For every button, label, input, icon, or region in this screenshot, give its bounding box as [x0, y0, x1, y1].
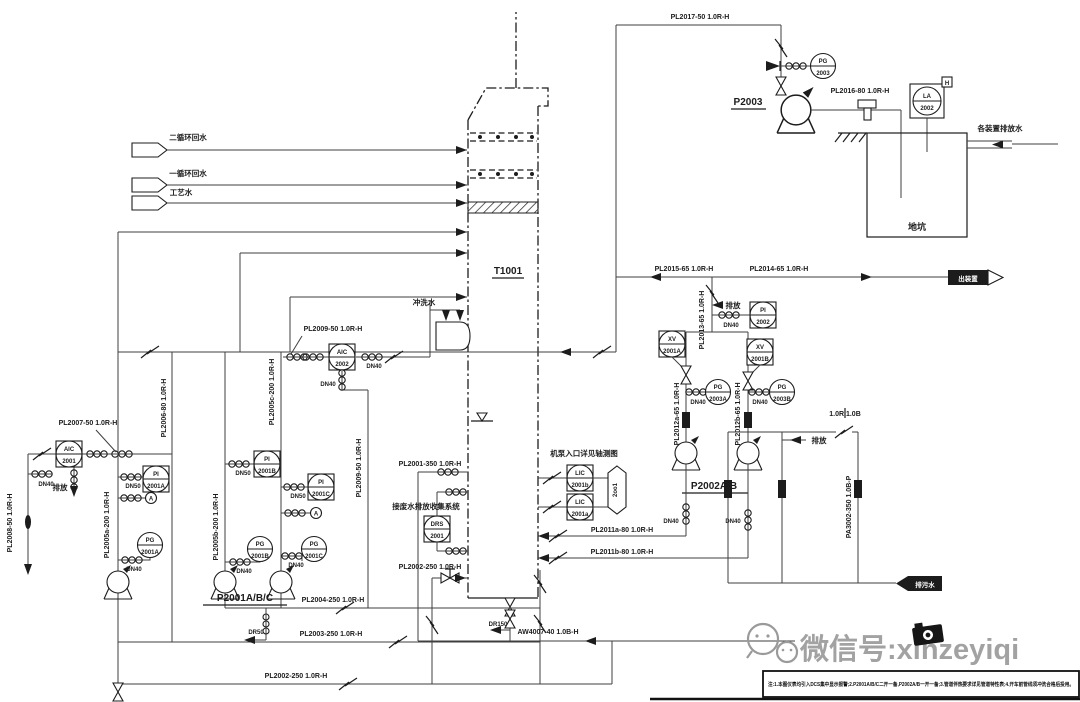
svg-text:2001a: 2001a [572, 512, 589, 518]
dn40-label: DN40 [690, 400, 706, 406]
instrument-lic2001a: LIC2001a [567, 494, 593, 520]
vent-label-2: 排放 [812, 435, 827, 445]
svg-text:2001B: 2001B [751, 357, 769, 363]
voting-logic-symbol: 2oo1 [608, 466, 626, 514]
svg-text:PG: PG [256, 542, 265, 548]
sample-point-a2: A [311, 508, 322, 519]
pipe-label-pl2005b: PL2005b-200 1.0R-H [213, 494, 220, 561]
pipe-label-pl2013: PL2013-65 1.0R-H [699, 291, 706, 350]
dn40-label: DN40 [320, 382, 336, 388]
dn40-label: DN40 [752, 400, 768, 406]
dn40-label: DN40 [723, 323, 739, 329]
svg-text:2001B: 2001B [251, 554, 269, 560]
instrument-pg2003: PG2003 [811, 54, 836, 79]
svg-text:XV: XV [756, 345, 764, 351]
svg-text:2001A: 2001A [141, 550, 159, 556]
instrument-pi2002: PI2002 [750, 302, 776, 328]
packing-band [468, 202, 538, 213]
dn50-label: DN50 [290, 494, 306, 500]
pipe-label-pl2011a: PL2011a-80 1.0R-H [591, 527, 653, 534]
instrument-pg2001a: PG2001A [138, 533, 163, 558]
svg-text:出装置: 出装置 [958, 274, 978, 283]
instrument-pg2003b: PG2003B [770, 380, 795, 405]
dn50-label: DN50 [235, 471, 251, 477]
pipe-label-pl2016: PL2016-80 1.0R-H [831, 88, 890, 95]
column-tag: T1001 [494, 266, 523, 277]
svg-text:AIC: AIC [337, 350, 348, 356]
pipe-label-pa3002: PA3002-350 1.0B-P [846, 475, 853, 538]
instrument-pi2001b: PI2001B [254, 451, 280, 477]
svg-text:2002: 2002 [335, 362, 349, 368]
svg-text:2oo1: 2oo1 [613, 482, 619, 497]
pid-drawing-canvas: T1001 冲洗水 DR150 二循环回水 一循环回水 工艺水 [0, 0, 1080, 702]
pipe-label-pl2015: PL2015-65 1.0R-H [655, 266, 714, 273]
general-notes-text: 注:1.本图仪表均引入DCS集中显示报警;2.P2001A/B/C二开一备,P2… [768, 680, 1074, 688]
pipe-label-pl2005c: PL2005c-200 1.0R-H [269, 359, 276, 426]
dn50-label: DN50 [125, 484, 141, 490]
dr50-label: DR50 [248, 630, 264, 636]
svg-text:LIC: LIC [575, 500, 585, 506]
svg-text:XV: XV [668, 337, 676, 343]
dn40-label: DN40 [236, 569, 252, 575]
svg-text:2002: 2002 [920, 106, 934, 112]
pipe-label-pl2007: PL2007-50 1.0R-H [59, 420, 118, 427]
svg-text:PG: PG [819, 59, 828, 65]
svg-text:2001C: 2001C [312, 492, 330, 498]
pipe-label-pl2004: PL2004-250 1.0R-H [302, 597, 365, 604]
pipe-label-pl2009v: PL2009-50 1.0R-H [356, 439, 363, 498]
pipe-label-pl2002a: PL2002-250 1.0R-H [399, 564, 462, 571]
pipe-label-pl2006: PL2006-80 1.0R-H [161, 379, 168, 438]
instrument-xv2001a: XV2001A [659, 331, 685, 357]
feed1-label: 二循环回水 [169, 132, 207, 142]
pit-label: 地坑 [908, 221, 926, 232]
pipe-label-pl2009h: PL2009-50 1.0R-H [304, 326, 363, 333]
instrument-xv2001b: XV2001B [747, 339, 773, 365]
pid-diagram: T1001 冲洗水 DR150 二循环回水 一循环回水 工艺水 [0, 0, 1080, 702]
svg-text:PI: PI [153, 472, 159, 478]
pipe-label-pl2001: PL2001-350 1.0R-H [399, 461, 462, 468]
p2003-tag: P2003 [734, 97, 763, 108]
drain-label: 排放 [53, 482, 68, 492]
pipe-label-pl2011b: PL2011b-80 1.0R-H [591, 549, 654, 556]
svg-text:2003B: 2003B [773, 397, 791, 403]
svg-text:PI: PI [264, 457, 270, 463]
svg-text:DRS: DRS [431, 522, 444, 528]
dn40-label: DN40 [366, 364, 382, 370]
pipe-label-pl2008: PL2008-50 1.0R-H [7, 494, 14, 553]
pipe-label-pl2014: PL2014-65 1.0R-H [750, 266, 809, 273]
svg-text:A: A [314, 512, 319, 518]
svg-text:2003: 2003 [816, 71, 830, 77]
aic2001-tag: AIC [64, 447, 75, 453]
svg-text:PI: PI [318, 480, 324, 486]
svg-text:PG: PG [310, 542, 319, 548]
svg-text:2001C: 2001C [305, 554, 323, 560]
drs-note: 接废水排放收集系统 [392, 501, 460, 511]
instrument-pg2001b: PG2001B [248, 537, 273, 562]
svg-text:LIC: LIC [575, 471, 585, 477]
svg-text:2001B: 2001B [258, 469, 276, 475]
pit-inlet-label: 各装置排放水 [977, 123, 1023, 133]
instrument-lic2001b: LIC2001b [567, 465, 593, 491]
sample-point-a1: A [146, 493, 157, 504]
svg-text:PI: PI [760, 308, 766, 314]
watermark-text: 微信号:xinzeyiqi [799, 633, 1019, 666]
p2001-tag: P2001A/B/C [217, 593, 273, 604]
dr150-label: DR150 [489, 622, 508, 628]
svg-text:排污水: 排污水 [915, 580, 935, 589]
instrument-drs2001: DRS2001 [424, 516, 450, 542]
svg-text:2001b: 2001b [571, 483, 588, 489]
wash-water-label: 冲洗水 [413, 297, 436, 307]
high-alarm-flag: H [945, 81, 949, 87]
instrument-pg2001c: PG2001C [302, 537, 327, 562]
pipe-label-pl2017: PL2017-50 1.0R-H [671, 14, 730, 21]
pipe-label-pl2003: PL2003-250 1.0R-H [300, 631, 363, 638]
aic2001-num: 2001 [62, 459, 76, 465]
instrument-aic2002: AIC2002 [329, 344, 355, 370]
pipe-label-pl2012b: PL2012b-65 1.0R-H [735, 382, 742, 445]
suction-strainer-a [682, 412, 690, 428]
pump-inlet-note: 机泵入口详见轴测图 [550, 448, 618, 458]
feed2-label: 一循环回水 [169, 168, 207, 178]
instrument-pi2001a: PI2001A [143, 466, 169, 492]
svg-text:2003A: 2003A [709, 397, 727, 403]
svg-text:PG: PG [778, 385, 787, 391]
pipe-label-pl2005a: PL2005a-200 1.0R-H [104, 492, 111, 559]
pipe-label-pl2002b: PL2002-250 1.0R-H [265, 673, 328, 680]
svg-text:2001: 2001 [430, 534, 444, 540]
svg-text:PG: PG [146, 538, 155, 544]
suction-strainer-b [744, 412, 752, 428]
svg-text:A: A [149, 497, 154, 503]
instrument-pg2003a: PG2003A [706, 380, 731, 405]
instrument-pi2001c: PI2001C [308, 474, 334, 500]
svg-text:2001A: 2001A [663, 349, 681, 355]
instrument-aic2001: AIC 2001 [56, 441, 82, 467]
pipe-label-pl2012a: PL2012a-65 1.0R-H [674, 383, 681, 446]
svg-text:PG: PG [714, 385, 723, 391]
svg-text:LA: LA [923, 94, 932, 100]
vent-label-1: 排放 [726, 300, 741, 310]
svg-text:2002: 2002 [756, 320, 770, 326]
svg-text:2001A: 2001A [147, 484, 165, 490]
dn40-label: DN40 [663, 519, 679, 525]
pipe-label-aw4007: AW4007-40 1.0B-H [517, 629, 578, 636]
feed3-label: 工艺水 [170, 187, 193, 197]
